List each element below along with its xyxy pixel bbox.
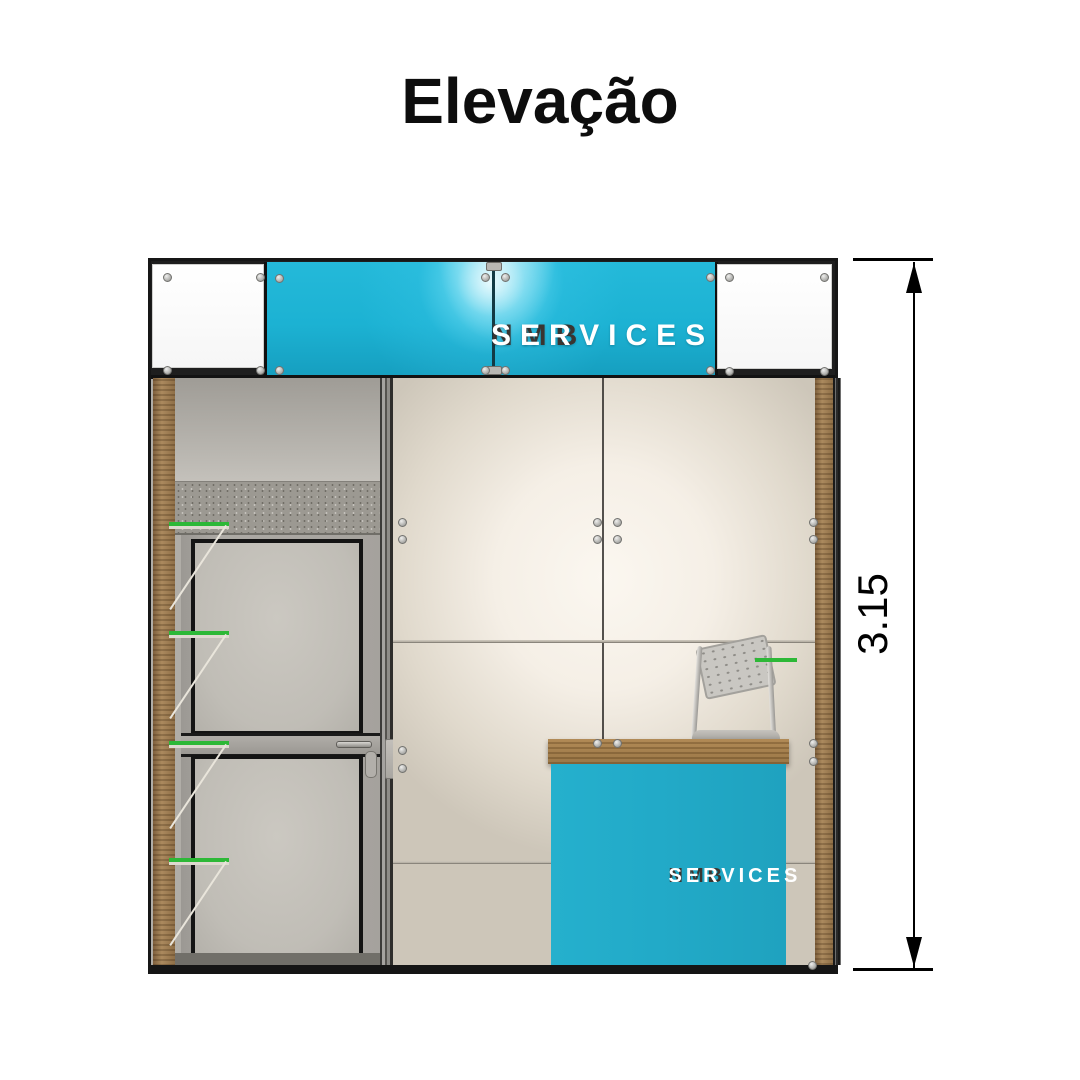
screw-icon: [256, 366, 265, 375]
screw-icon: [613, 535, 622, 544]
screw-icon: [613, 739, 622, 748]
screw-icon: [256, 273, 265, 282]
screw-icon: [398, 535, 407, 544]
counter-brand-light: SERVICES: [669, 865, 802, 888]
arrow-up-icon: [906, 263, 922, 293]
screw-icon: [398, 764, 407, 773]
screw-icon: [725, 367, 734, 376]
header-banner: NMBSERVICES: [264, 262, 718, 375]
screw-icon: [275, 274, 284, 283]
counter-top: [548, 739, 789, 764]
door-lock-plate: [365, 751, 377, 778]
screw-icon: [481, 366, 490, 375]
screw-icon: [593, 739, 602, 748]
screw-icon: [808, 961, 817, 970]
booth-elevation: NMBSERVICES: [148, 258, 838, 974]
screw-icon: [501, 273, 510, 282]
arrow-down-icon: [906, 937, 922, 967]
storage-door: [181, 535, 380, 965]
storage-kick-strip: [175, 953, 380, 965]
wood-post-left: [153, 378, 175, 971]
screw-icon: [809, 518, 818, 527]
screw-icon: [398, 746, 407, 755]
frame-post-center: [380, 378, 393, 965]
screw-icon: [820, 367, 829, 376]
dimension-value: 3.15: [818, 569, 928, 659]
banner-brand-light: SERVICES: [491, 319, 714, 353]
chair-backrest: [695, 634, 776, 700]
reception-counter: NMBSERVICES: [551, 764, 786, 965]
shelf-line: [169, 522, 229, 526]
dimension-tick-top: [853, 258, 933, 261]
dimension-tick-bottom: [853, 968, 933, 971]
screw-icon: [613, 518, 622, 527]
door-panel-lower: [191, 755, 363, 957]
page-title: Elevação: [0, 64, 1080, 138]
shelf-line: [169, 741, 229, 745]
screw-icon: [809, 739, 818, 748]
screw-icon: [593, 535, 602, 544]
screw-icon: [163, 366, 172, 375]
screw-icon: [809, 535, 818, 544]
storage-section: [175, 378, 380, 965]
shelf-line: [169, 631, 229, 635]
screw-icon: [820, 273, 829, 282]
screw-icon: [725, 273, 734, 282]
door-handle: [336, 741, 372, 748]
screw-icon: [706, 366, 715, 375]
screw-icon: [481, 273, 490, 282]
storage-speckled-band: [175, 481, 380, 535]
floor-strip: [151, 965, 835, 974]
door-panel-upper: [191, 539, 363, 735]
wood-post-right: [815, 378, 833, 965]
screw-icon: [275, 366, 284, 375]
storage-upper-panel: [175, 378, 380, 481]
screw-icon: [593, 518, 602, 527]
screw-icon: [163, 273, 172, 282]
shelf-line: [755, 658, 797, 662]
screw-icon: [809, 757, 818, 766]
header-panel-right: [717, 264, 832, 369]
frame-edge-right: [833, 378, 841, 965]
screw-icon: [706, 273, 715, 282]
shelf-line: [169, 858, 229, 862]
seam-clip-icon: [486, 262, 502, 271]
screw-icon: [398, 518, 407, 527]
screw-icon: [501, 366, 510, 375]
